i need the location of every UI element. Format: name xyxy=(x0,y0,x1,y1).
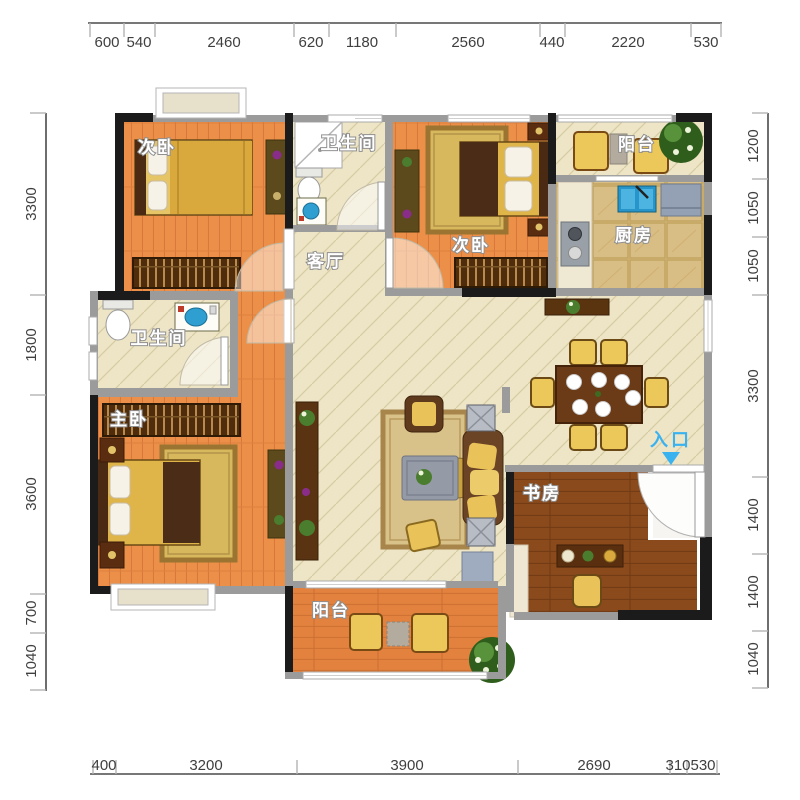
dim-right-0: 1200 xyxy=(745,129,762,162)
plate xyxy=(615,375,630,390)
plant xyxy=(659,119,703,163)
door-leaf xyxy=(386,238,393,288)
dim-right-5: 1400 xyxy=(745,575,762,608)
dim-right-4: 1400 xyxy=(745,498,762,531)
door-leaf xyxy=(378,182,385,230)
dim-bottom-5: 530 xyxy=(690,757,715,774)
wall-opening xyxy=(653,465,704,472)
floor-plan-svg: 600 540 2460 620 1180 2560 440 2220 530 … xyxy=(0,0,800,800)
dim-bottom-1: 3200 xyxy=(189,757,222,774)
dim-top-0: 600 xyxy=(94,34,119,51)
ruler-bottom: 400 3200 3900 2690 310 530 xyxy=(90,757,720,774)
wall xyxy=(90,395,98,594)
plant xyxy=(566,300,580,314)
ruler-left: 3300 1800 3600 700 1040 xyxy=(23,113,46,691)
plant xyxy=(583,551,594,562)
dim-top-2: 2460 xyxy=(207,34,240,51)
room-label-bedroom2: 次卧 xyxy=(452,235,490,255)
window xyxy=(89,352,97,380)
flower-decor xyxy=(275,461,284,470)
dim-left-2: 3600 xyxy=(23,477,40,510)
bay-window xyxy=(111,584,215,610)
room-label-balcony1: 阳台 xyxy=(618,134,656,154)
wall xyxy=(704,215,712,295)
dim-left-3: 700 xyxy=(23,600,40,625)
wall xyxy=(700,537,712,620)
window xyxy=(89,317,97,345)
bed-blanket xyxy=(163,462,200,543)
pillow xyxy=(148,181,167,210)
wall xyxy=(115,113,124,293)
sofa-cushion xyxy=(466,442,497,471)
balcony-chair xyxy=(412,614,448,652)
entry-door-leaf xyxy=(695,472,705,537)
wall-opening xyxy=(284,229,294,289)
cabinet xyxy=(462,552,493,582)
wall xyxy=(115,113,153,122)
dim-top-4: 1180 xyxy=(346,34,378,51)
wall xyxy=(505,465,653,472)
dim-right-3: 3300 xyxy=(745,369,762,402)
floor-plan-page: 600 540 2460 620 1180 2560 440 2220 530 … xyxy=(0,0,800,800)
wall xyxy=(285,113,293,229)
wall xyxy=(502,387,510,413)
wall xyxy=(285,586,293,679)
sink-bowl xyxy=(185,308,207,326)
entrance-label: 入口 xyxy=(650,430,692,450)
pillow xyxy=(110,466,130,498)
room-label-living: 客厅 xyxy=(306,251,345,271)
flower-decor xyxy=(302,488,310,496)
dim-right-6: 1040 xyxy=(745,642,762,675)
plant xyxy=(402,157,412,167)
wall xyxy=(704,113,712,182)
wall xyxy=(98,291,150,300)
dim-top-7: 2220 xyxy=(611,34,644,51)
dim-right-1: 1050 xyxy=(745,191,762,224)
dim-bottom-3: 2690 xyxy=(577,757,610,774)
toilet xyxy=(106,310,130,340)
plate xyxy=(626,391,641,406)
dim-left-1: 1800 xyxy=(23,328,40,361)
chair-cushion xyxy=(412,402,436,426)
wardrobe xyxy=(455,258,547,287)
room-label-bathroom1: 卫生间 xyxy=(321,133,378,153)
door-leaf xyxy=(221,337,228,385)
balcony-chair xyxy=(350,614,382,650)
wall xyxy=(618,610,712,620)
dim-bottom-4: 310 xyxy=(665,757,690,774)
dining-chair xyxy=(531,378,554,407)
plate xyxy=(596,402,611,417)
room-label-study: 书房 xyxy=(523,483,561,503)
wardrobe xyxy=(133,258,240,288)
plant xyxy=(274,515,284,525)
dining-chair xyxy=(570,425,596,450)
plate xyxy=(567,375,582,390)
ruler-top: 600 540 2460 620 1180 2560 440 2220 530 xyxy=(88,23,722,51)
wall xyxy=(498,586,506,679)
dim-right-2: 1050 xyxy=(745,249,762,282)
dim-bottom-2: 3900 xyxy=(390,757,423,774)
bay-window xyxy=(156,88,246,118)
pillow xyxy=(505,181,532,211)
dining-chair xyxy=(601,425,627,450)
dim-top-5: 2560 xyxy=(451,34,484,51)
dim-bottom-0: 400 xyxy=(91,757,116,774)
room-label-bedroom1: 次卧 xyxy=(138,137,176,157)
room-label-kitchen: 厨房 xyxy=(615,225,653,245)
balcony-table xyxy=(387,622,409,646)
room-label-bathroom2: 卫生间 xyxy=(131,328,188,348)
wall xyxy=(462,288,556,297)
plate xyxy=(573,400,588,415)
plant xyxy=(299,520,315,536)
dim-top-3: 620 xyxy=(298,34,323,51)
plate xyxy=(592,373,607,388)
room-label-master: 主卧 xyxy=(110,409,148,429)
dim-top-6: 440 xyxy=(539,34,564,51)
bed-headboard xyxy=(98,460,108,545)
dining-chair xyxy=(601,340,627,365)
wall xyxy=(90,300,98,395)
pillow xyxy=(110,503,130,535)
toilet-tank xyxy=(103,300,133,309)
desk-chair xyxy=(573,575,601,607)
dim-left-0: 3300 xyxy=(23,187,40,220)
sofa-cushion xyxy=(470,470,499,495)
flower-decor xyxy=(273,151,282,160)
flower-decor xyxy=(403,210,412,219)
wall xyxy=(506,472,514,544)
sink-bowl xyxy=(303,203,319,219)
ottoman xyxy=(406,519,441,552)
decor-item xyxy=(604,550,616,562)
wall xyxy=(548,113,556,184)
dim-top-1: 540 xyxy=(126,34,151,51)
plant xyxy=(299,410,315,426)
ruler-right: 1200 1050 1050 3300 1400 1400 1040 xyxy=(745,113,768,688)
plant xyxy=(416,469,432,485)
bed-headboard xyxy=(539,142,548,216)
room-label-balcony2: 阳台 xyxy=(312,600,350,620)
balcony-chair xyxy=(574,132,608,170)
bed-blanket xyxy=(460,142,498,216)
fridge xyxy=(661,184,701,216)
window xyxy=(596,176,658,181)
decor-item xyxy=(562,550,574,562)
pillow xyxy=(505,147,532,177)
wall xyxy=(230,300,238,395)
dim-top-8: 530 xyxy=(693,34,718,51)
decor-item xyxy=(273,192,281,200)
dim-left-4: 1040 xyxy=(23,644,40,677)
toilet-tank xyxy=(296,168,322,177)
wall xyxy=(90,388,238,397)
dining-chair xyxy=(645,378,668,407)
dining-chair xyxy=(570,340,596,365)
bed-blanket xyxy=(170,141,252,214)
